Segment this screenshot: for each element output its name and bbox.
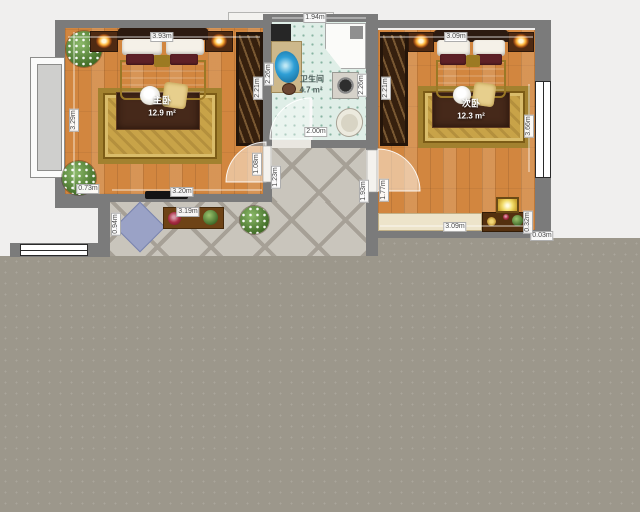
- sideboard-vase: [487, 217, 496, 226]
- window-lower-left[interactable]: [20, 244, 88, 256]
- bath-stool[interactable]: [282, 83, 296, 95]
- dim-second-outer: 0.03m: [530, 231, 553, 241]
- wall-right-lower: [535, 178, 551, 238]
- shower-head: [350, 26, 363, 39]
- corridor-floor: [272, 148, 366, 202]
- dim-bath-top: 1.94m: [303, 13, 326, 23]
- second-desk-lamp[interactable]: [496, 197, 519, 213]
- master-accent-pillow-left: [126, 54, 154, 65]
- dim-bath-left: 2.26m: [264, 62, 274, 85]
- dim-master-bottom-left: 0.73m: [76, 184, 99, 194]
- second-accent-pillow-center: [466, 55, 480, 67]
- master-lamp-right: [208, 31, 230, 51]
- dim-master-bottom: 3.20m: [170, 187, 193, 197]
- dim-corridor-width: 1.23m: [271, 165, 281, 188]
- dim-bath-right: 2.26m: [357, 73, 367, 96]
- hall-cabinet-plant: [203, 210, 218, 225]
- sideboard-flower: [503, 214, 509, 220]
- dim-bath-bottom: 2.00m: [304, 127, 327, 137]
- dim-second-right: 3.66m: [524, 114, 534, 137]
- bath-room-area: 4.7 m²: [299, 86, 322, 95]
- wall-right-upper: [535, 20, 551, 81]
- dim-master-door: 1.08m: [252, 152, 262, 175]
- second-lamp-left: [410, 31, 432, 51]
- master-lamp-left: [93, 31, 115, 51]
- dim-master-left: 3.29m: [69, 108, 79, 131]
- master-accent-pillow-center: [154, 55, 170, 67]
- dim-second-door: 1.77m: [379, 178, 389, 201]
- dim-second-closet: 2.21m: [381, 76, 391, 99]
- sideboard-plant: [512, 215, 523, 226]
- hall-plant[interactable]: [240, 206, 269, 234]
- dim-second-bottom: 3.09m: [443, 222, 466, 232]
- master-room-area: 12.9 m²: [148, 109, 176, 118]
- wall-bath-bottom: [311, 140, 378, 148]
- window-mullion: [543, 82, 544, 177]
- dim-corridor-length: 1.93m: [359, 179, 369, 202]
- bath-cabinet[interactable]: [271, 24, 291, 41]
- washing-machine[interactable]: [332, 72, 359, 99]
- dim-hall-depth: 0.94m: [111, 212, 121, 235]
- second-room-name: 次卧: [462, 97, 480, 110]
- second-room-area: 12.3 m²: [457, 112, 485, 121]
- dim-second-top: 3.09m: [444, 32, 467, 42]
- bath-room-name: 卫生间: [300, 74, 324, 85]
- second-accent-pillow-left: [440, 54, 466, 65]
- dim-hall-cabinet: 3.19m: [176, 207, 199, 217]
- wall-bath-second-upper: [366, 14, 378, 150]
- dim-second-gap: 0.32m: [523, 210, 533, 233]
- master-room-name: 主卧: [153, 94, 171, 107]
- floor-plan: 主卧 12.9 m² 次卧 12.3 m² 卫生间 4.7 m² 3.93m 0…: [0, 0, 640, 512]
- window-mullion: [21, 250, 87, 251]
- dim-master-closet: 2.21m: [253, 76, 263, 99]
- wall-hall-left: [98, 200, 110, 257]
- master-accent-pillow-right: [170, 54, 198, 65]
- wall-top-left: [55, 20, 263, 28]
- toilet-seat: [341, 114, 358, 132]
- bath-door-threshold: [272, 140, 311, 148]
- window-second-bedroom[interactable]: [535, 81, 551, 178]
- outside-area-bottom: [0, 256, 640, 512]
- dim-master-top: 3.93m: [150, 32, 173, 42]
- second-lamp-right: [510, 31, 532, 51]
- bay-window-panel: [37, 64, 62, 171]
- wall-top-right: [378, 20, 550, 28]
- outside-area-right: [378, 238, 640, 256]
